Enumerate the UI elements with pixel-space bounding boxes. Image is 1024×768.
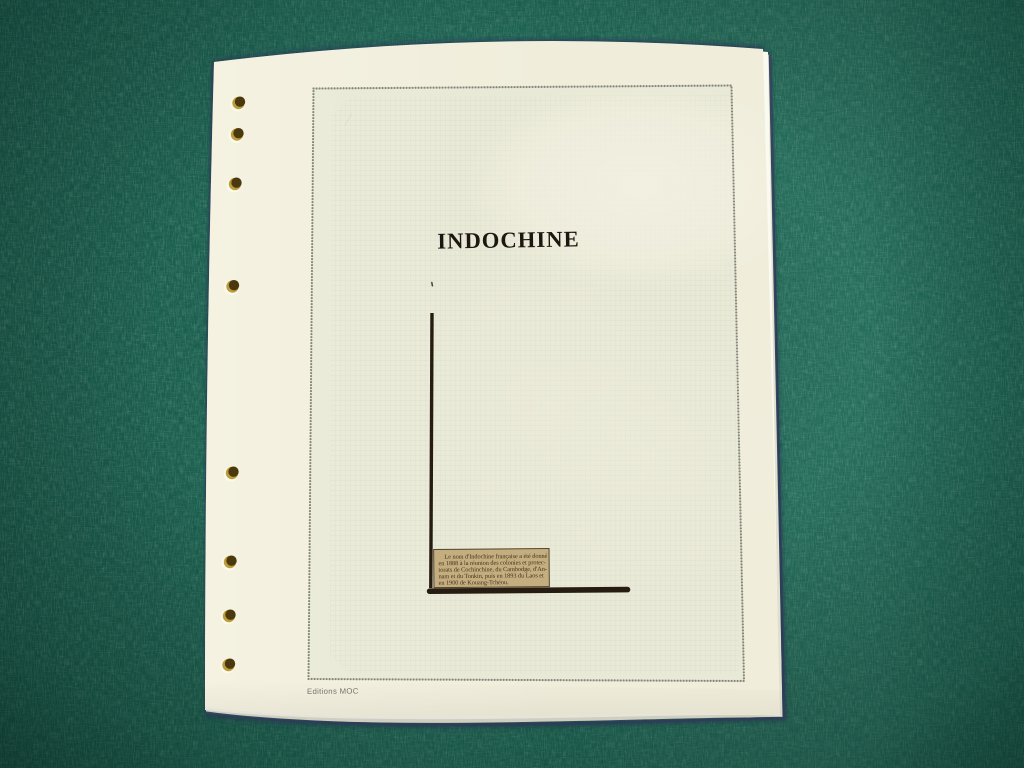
svg-text:Editions MOC: Editions MOC (307, 687, 359, 696)
svg-text:INDOCHINE: INDOCHINE (437, 226, 580, 253)
svg-text:en 1900 de Kouang-Tchéou.: en 1900 de Kouang-Tchéou. (439, 579, 510, 587)
